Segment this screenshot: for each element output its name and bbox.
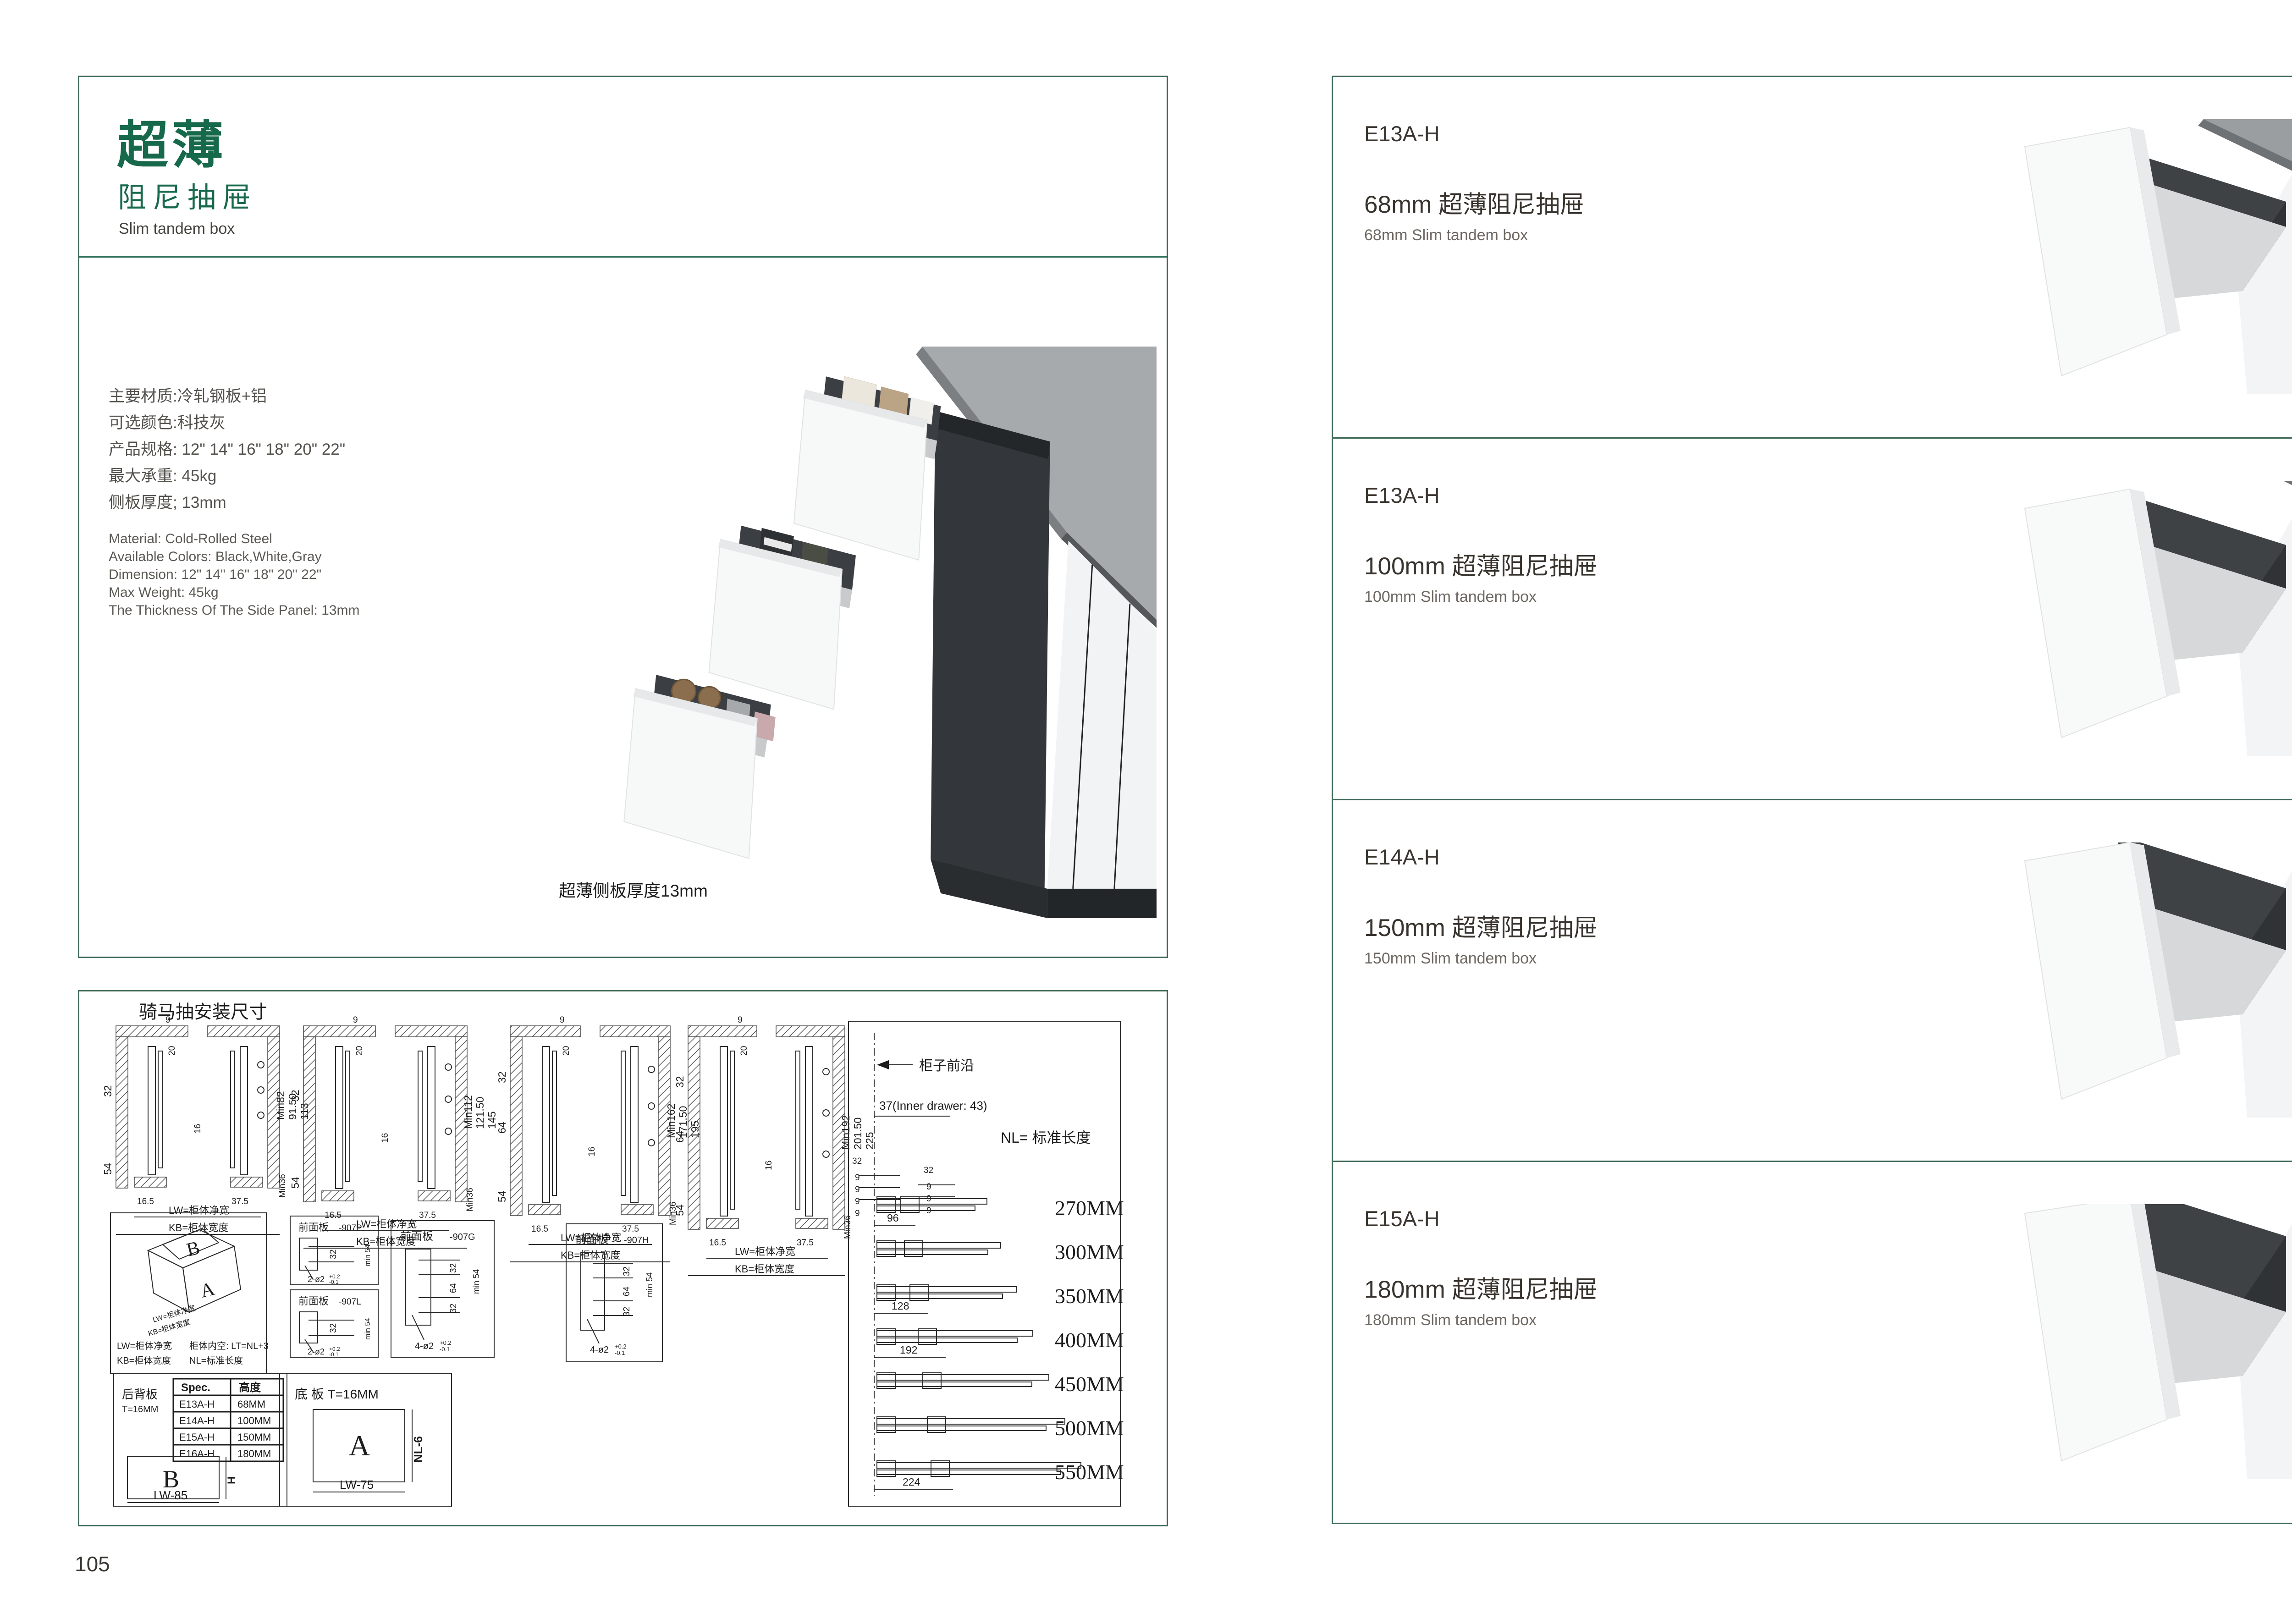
page-subtitle-cn: 阻尼抽屉 [118, 174, 257, 215]
svg-text:54: 54 [102, 1163, 114, 1175]
cross-section-2: Min112 121.50 145 32 54 9 20 16 16.5 37.… [289, 1015, 498, 1248]
svg-text:400MM: 400MM [1055, 1328, 1124, 1352]
svg-text:64: 64 [622, 1286, 632, 1296]
svg-text:NL=标准长度: NL=标准长度 [189, 1355, 243, 1366]
product-title-en: 100mm Slim tandem box [1364, 588, 1537, 606]
svg-text:20: 20 [739, 1046, 749, 1056]
product-photo-68mm [1910, 119, 2292, 394]
svg-text:9: 9 [855, 1185, 860, 1195]
diagram-title: 骑马抽安装尺寸 [139, 1002, 267, 1022]
rail-row-300: 300MM [877, 1240, 1124, 1264]
svg-text:32: 32 [449, 1263, 458, 1273]
svg-text:前面板: 前面板 [298, 1295, 329, 1307]
main-product-photo: 超薄侧板厚度13mm [546, 321, 1157, 918]
svg-text:9: 9 [855, 1209, 860, 1218]
product-section-e13a-68: E13A-H 68mm 超薄阻尼抽屉 68mm Slim tandem box [1333, 77, 2292, 439]
drawer-cabinet-illustration [546, 321, 1157, 918]
cross-section-4: Min192 201.50 225 32 64 54 9 20 16 16.5 … [674, 1015, 876, 1276]
svg-text:Min82: Min82 [275, 1091, 286, 1120]
svg-text:KB=柜体宽度: KB=柜体宽度 [735, 1263, 794, 1275]
svg-text:KB=柜体宽度: KB=柜体宽度 [561, 1250, 620, 1261]
svg-text:54: 54 [289, 1177, 301, 1189]
svg-text:Min192: Min192 [840, 1115, 852, 1150]
drawer-bottom [624, 675, 775, 859]
svg-text:-0.1: -0.1 [440, 1346, 450, 1353]
svg-text:192: 192 [900, 1344, 917, 1356]
svg-text:前面板: 前面板 [400, 1230, 433, 1243]
svg-text:32: 32 [674, 1076, 686, 1088]
svg-text:9: 9 [855, 1197, 860, 1206]
back-panel-spec: 后背板 T=16MM Spec. 高度 E13A-H 68MM E14A-H 1… [114, 1373, 287, 1506]
svg-text:300MM: 300MM [1055, 1240, 1124, 1264]
svg-text:KB=柜体宽度: KB=柜体宽度 [117, 1355, 171, 1366]
page-number-left: 105 [75, 1552, 110, 1576]
svg-text:Min36: Min36 [278, 1174, 287, 1198]
svg-text:min 54: min 54 [472, 1269, 481, 1294]
svg-text:E16A-H: E16A-H [179, 1448, 215, 1459]
svg-text:37(Inner drawer: 43): 37(Inner drawer: 43) [879, 1099, 987, 1112]
svg-text:+0.2: +0.2 [615, 1343, 627, 1350]
spec-cn-line: 主要材质:冷轧钢板+铝 [109, 383, 521, 410]
svg-text:16.5: 16.5 [531, 1224, 548, 1234]
svg-text:E14A-H: E14A-H [179, 1415, 215, 1426]
svg-text:前面板: 前面板 [575, 1233, 608, 1246]
spec-cn-line: 最大承重: 45kg [109, 463, 521, 490]
svg-text:9: 9 [926, 1182, 931, 1192]
svg-text:32: 32 [496, 1071, 508, 1083]
svg-text:32: 32 [289, 1090, 301, 1101]
spec-block: 主要材质:冷轧钢板+铝 可选颜色:科技灰 产品规格: 12" 14" 16" 1… [109, 383, 521, 619]
front-panel-907g: 前面板 -907G 32 64 32 min 54 4-ø2 +0.2 -0.1 [391, 1221, 494, 1357]
svg-text:-0.1: -0.1 [329, 1351, 339, 1358]
svg-text:9: 9 [560, 1015, 565, 1025]
svg-text:9: 9 [353, 1015, 358, 1025]
bottom-panel: 底 板 T=16MM A NL-6 LW-75 [280, 1373, 452, 1506]
rail-row-270: 270MM 96 [874, 1196, 1124, 1225]
spec-cn-line: 可选颜色:科技灰 [109, 410, 521, 436]
svg-text:16.5: 16.5 [709, 1238, 726, 1248]
product-title-en: 68mm Slim tandem box [1364, 226, 1528, 244]
svg-text:-907G: -907G [450, 1232, 475, 1242]
svg-text:Spec.: Spec. [181, 1382, 210, 1394]
svg-text:64: 64 [496, 1122, 508, 1134]
spec-cn-line: 产品规格: 12" 14" 16" 18" 20" 22" [109, 436, 521, 463]
svg-text:16: 16 [193, 1124, 203, 1134]
svg-text:150MM: 150MM [237, 1431, 271, 1443]
cabinet-opening [931, 411, 1050, 891]
svg-text:柜子前沿: 柜子前沿 [919, 1058, 974, 1073]
svg-text:-907L: -907L [339, 1297, 361, 1307]
svg-text:16.5: 16.5 [325, 1211, 342, 1220]
product-title-en: 150mm Slim tandem box [1364, 950, 1537, 968]
svg-text:A: A [198, 1278, 217, 1302]
spec-cn-line: 侧板厚度; 13mm [109, 490, 521, 516]
svg-text:min 54: min 54 [645, 1272, 654, 1297]
product-photo-100mm [1910, 481, 2292, 756]
page-title-cn: 超薄 [117, 104, 227, 178]
svg-text:-907H: -907H [624, 1235, 649, 1245]
product-title-cn: 68mm 超薄阻尼抽屉 [1364, 185, 1584, 220]
svg-text:32: 32 [329, 1250, 338, 1259]
installation-diagram-panel: 骑马抽安装尺寸 Min82 91.50 113 32 54 9 20 16 16… [78, 990, 1168, 1526]
svg-text:37.5: 37.5 [231, 1197, 248, 1206]
svg-text:E13A-H: E13A-H [179, 1398, 215, 1410]
rail-row-550: 550MM 224 [874, 1460, 1124, 1489]
product-photo-150mm [1910, 842, 2292, 1118]
svg-text:-0.1: -0.1 [329, 1279, 339, 1285]
spec-en-line: Max Weight: 45kg [109, 584, 521, 601]
svg-text:底 板 T=16MM: 底 板 T=16MM [295, 1387, 379, 1401]
length-chart: 柜子前沿 37(Inner drawer: 43) NL= 标准长度 32 9 … [848, 1021, 1124, 1506]
svg-text:64: 64 [674, 1131, 686, 1143]
svg-text:高度: 高度 [239, 1381, 261, 1394]
svg-text:T=16MM: T=16MM [122, 1404, 158, 1415]
svg-text:LW=柜体净宽: LW=柜体净宽 [169, 1205, 229, 1216]
svg-text:16: 16 [587, 1147, 597, 1156]
svg-text:550MM: 550MM [1055, 1460, 1124, 1484]
svg-text:100MM: 100MM [237, 1415, 271, 1426]
svg-text:450MM: 450MM [1055, 1372, 1124, 1396]
svg-text:2-ø2: 2-ø2 [308, 1275, 325, 1284]
svg-text:32: 32 [622, 1266, 632, 1276]
spec-en-line: The Thickness Of The Side Panel: 13mm [109, 601, 521, 619]
cross-section-3: Min162 171.50 195 32 64 54 9 20 16 16.5 … [496, 1015, 701, 1262]
header-divider [79, 256, 1167, 258]
svg-text:96: 96 [887, 1212, 899, 1224]
svg-text:前面板: 前面板 [298, 1222, 329, 1233]
rail-row-400: 400MM 192 [874, 1328, 1124, 1357]
product-section-e15a-180: E15A-H 180mm 超薄阻尼抽屉 180mm Slim tandem bo… [1333, 1162, 2292, 1524]
drawer-top [794, 376, 941, 560]
svg-text:121.50: 121.50 [474, 1097, 486, 1129]
rail-row-450: 450MM [877, 1372, 1124, 1396]
product-code: E14A-H [1364, 844, 1440, 870]
svg-text:min 54: min 54 [364, 1244, 372, 1266]
cross-section-1: Min82 91.50 113 32 54 9 20 16 16.5 37.5 … [102, 1015, 310, 1234]
svg-text:min 54: min 54 [364, 1318, 372, 1340]
installation-diagram: 骑马抽安装尺寸 Min82 91.50 113 32 54 9 20 16 16… [79, 991, 1167, 1525]
isometric-cabinet-sketch: B A LW=柜体净宽 KB=柜体宽度 LW=柜体净宽 柜体内空: LT=NL+… [110, 1213, 269, 1373]
spec-en-line: Material: Cold-Rolled Steel [109, 530, 521, 548]
svg-text:Min36: Min36 [465, 1188, 475, 1211]
svg-text:180MM: 180MM [237, 1448, 271, 1459]
svg-text:LW=柜体净宽: LW=柜体净宽 [117, 1341, 172, 1351]
page-title-en: Slim tandem box [119, 220, 235, 238]
svg-text:20: 20 [355, 1046, 364, 1056]
rail-row-500: 500MM [877, 1416, 1124, 1440]
front-panel-907l: 前面板 -907L 32 min 54 2-ø2 +0.2 -0.1 [290, 1290, 378, 1358]
svg-text:54: 54 [496, 1190, 508, 1202]
svg-text:LW-75: LW-75 [340, 1478, 374, 1492]
svg-text:37.5: 37.5 [797, 1238, 814, 1248]
svg-text:32: 32 [102, 1085, 114, 1097]
rail-row-350: 350MM 128 [874, 1284, 1124, 1313]
svg-text:20: 20 [562, 1046, 571, 1056]
svg-text:500MM: 500MM [1055, 1416, 1124, 1440]
svg-text:54: 54 [674, 1204, 686, 1216]
cabinet-plinth [1047, 889, 1157, 918]
drawer-middle [709, 526, 856, 710]
svg-text:270MM: 270MM [1055, 1196, 1124, 1220]
product-code: E13A-H [1364, 483, 1440, 508]
svg-text:20: 20 [167, 1046, 177, 1056]
svg-text:-907P: -907P [339, 1223, 362, 1233]
svg-text:后背板: 后背板 [122, 1387, 158, 1401]
svg-text:68MM: 68MM [237, 1398, 265, 1410]
svg-text:4-ø2: 4-ø2 [415, 1341, 434, 1351]
product-title-en: 180mm Slim tandem box [1364, 1311, 1537, 1329]
svg-text:128: 128 [892, 1300, 909, 1312]
svg-text:LW-85: LW-85 [154, 1488, 187, 1502]
svg-text:LW=柜体净宽: LW=柜体净宽 [356, 1218, 417, 1230]
svg-text:9: 9 [855, 1173, 860, 1183]
svg-text:37.5: 37.5 [622, 1224, 639, 1234]
product-title-cn: 100mm 超薄阻尼抽屉 [1364, 547, 1598, 582]
svg-text:9: 9 [165, 1015, 171, 1025]
svg-text:KB=柜体宽度: KB=柜体宽度 [169, 1222, 228, 1233]
product-title-cn: 180mm 超薄阻尼抽屉 [1364, 1270, 1598, 1305]
product-title-cn: 150mm 超薄阻尼抽屉 [1364, 908, 1598, 943]
svg-text:B: B [184, 1237, 202, 1261]
photo-caption: 超薄侧板厚度13mm [559, 877, 708, 902]
product-code: E15A-H [1364, 1206, 1440, 1231]
product-code: E13A-H [1364, 121, 1440, 146]
svg-text:64: 64 [449, 1283, 458, 1293]
svg-text:A: A [349, 1429, 370, 1462]
spec-en-line: Available Colors: Black,White,Gray [109, 548, 521, 566]
svg-text:224: 224 [903, 1476, 920, 1488]
svg-text:Min36: Min36 [843, 1215, 853, 1239]
svg-text:16: 16 [380, 1133, 390, 1143]
svg-text:32: 32 [329, 1323, 338, 1333]
svg-text:柜体内空: LT=NL+3: 柜体内空: LT=NL+3 [189, 1341, 269, 1351]
right-page-panel: E13A-H 68mm 超薄阻尼抽屉 68mm Slim tandem box [1332, 76, 2292, 1524]
product-section-e13a-100: E13A-H 100mm 超薄阻尼抽屉 100mm Slim tandem bo… [1333, 439, 2292, 800]
svg-text:2-ø2: 2-ø2 [308, 1347, 325, 1356]
svg-text:+0.2: +0.2 [440, 1339, 452, 1346]
spec-lines-cn: 主要材质:冷轧钢板+铝 可选颜色:科技灰 产品规格: 12" 14" 16" 1… [109, 383, 521, 516]
svg-text:37.5: 37.5 [419, 1211, 436, 1220]
svg-text:32: 32 [622, 1307, 632, 1316]
svg-text:350MM: 350MM [1055, 1284, 1124, 1308]
svg-text:32: 32 [852, 1156, 862, 1166]
svg-text:16.5: 16.5 [137, 1197, 154, 1206]
svg-text:32: 32 [924, 1166, 933, 1175]
svg-text:-0.1: -0.1 [615, 1349, 625, 1356]
svg-text:H: H [226, 1476, 238, 1484]
svg-text:E15A-H: E15A-H [179, 1431, 215, 1443]
spec-table: Spec. 高度 E13A-H 68MM E14A-H 100MM E15A-H… [173, 1379, 283, 1461]
svg-text:Min112: Min112 [462, 1095, 474, 1129]
svg-text:4-ø2: 4-ø2 [590, 1345, 609, 1355]
svg-text:9: 9 [738, 1015, 743, 1025]
svg-text:NL= 标准长度: NL= 标准长度 [1001, 1129, 1091, 1146]
spec-lines-en: Material: Cold-Rolled Steel Available Co… [109, 530, 521, 619]
product-section-e14a-150: E14A-H 150mm 超薄阻尼抽屉 150mm Slim tandem bo… [1333, 800, 2292, 1162]
left-page-panel: 超薄 阻尼抽屉 Slim tandem box 主要材质:冷轧钢板+铝 可选颜色… [78, 76, 1168, 958]
svg-text:LW=柜体净宽: LW=柜体净宽 [735, 1246, 795, 1257]
spec-en-line: Dimension: 12" 14" 16" 18" 20" 22" [109, 566, 521, 584]
svg-text:NL-6: NL-6 [411, 1436, 425, 1463]
svg-text:201.50: 201.50 [852, 1118, 864, 1150]
svg-text:16: 16 [764, 1161, 774, 1170]
svg-text:32: 32 [449, 1304, 458, 1313]
product-photo-180mm [1910, 1204, 2292, 1479]
